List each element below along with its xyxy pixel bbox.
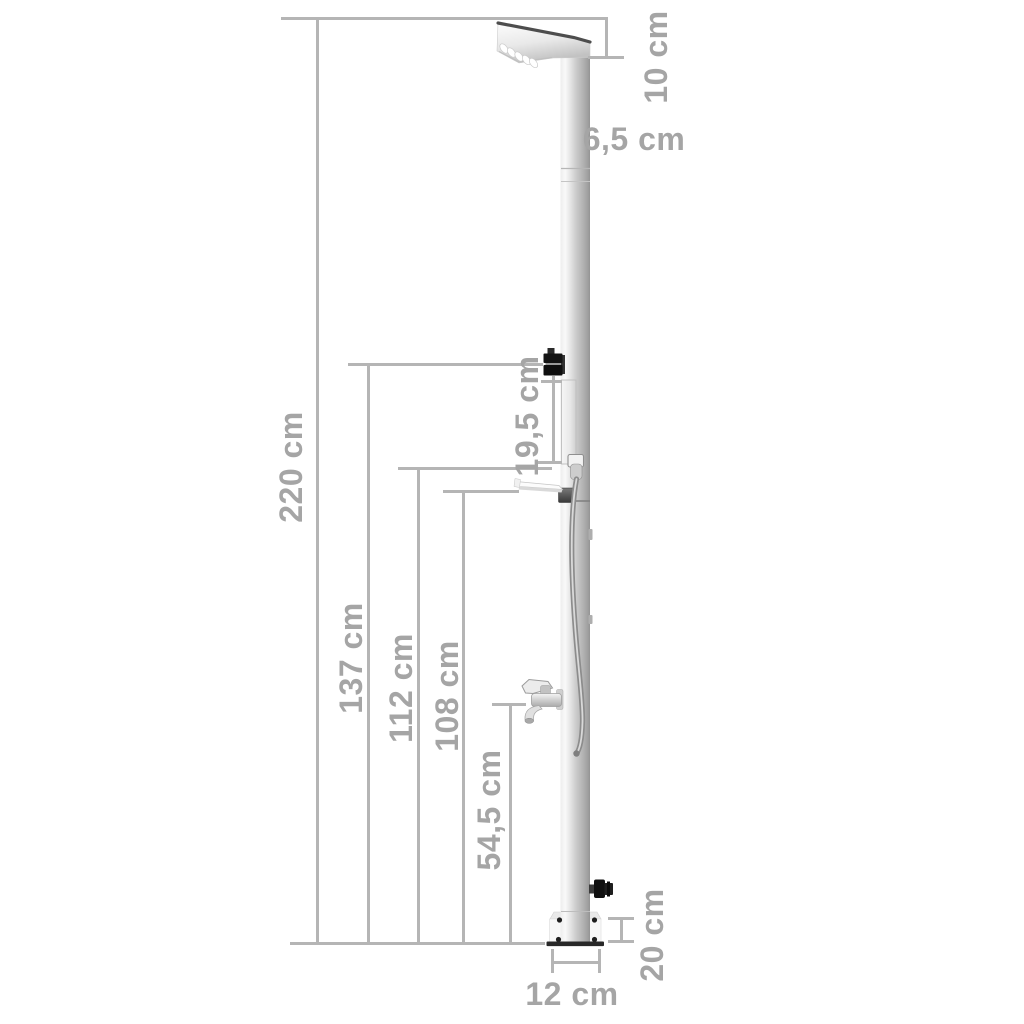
dim-ground-line bbox=[290, 942, 545, 945]
dim-label-total-height: 220 cm bbox=[275, 411, 307, 523]
dim-10-vline bbox=[605, 17, 608, 59]
dim-220-vline bbox=[316, 17, 319, 944]
pole-recessed-panel bbox=[562, 380, 577, 464]
dim-12-tick-left bbox=[551, 949, 554, 973]
pole-side-plug bbox=[589, 615, 593, 624]
dim-545-vline bbox=[509, 703, 512, 944]
dim-label-tap-height: 54,5 cm bbox=[473, 750, 505, 871]
dim-label-mixer-height: 137 cm bbox=[335, 602, 367, 714]
dim-label-shelf-height: 108 cm bbox=[431, 640, 463, 752]
dim-label-head-depth: 10 cm bbox=[640, 10, 672, 103]
pole-side-plug bbox=[589, 529, 593, 540]
dim-20-tick-bottom bbox=[608, 940, 634, 943]
dim-10-tick bbox=[588, 56, 624, 59]
dim-label-pole-width: 6,5 cm bbox=[583, 123, 686, 155]
dim-label-base-width: 12 cm bbox=[525, 978, 618, 1010]
dim-label-holder-height: 112 cm bbox=[385, 633, 417, 743]
dim-12-hline bbox=[551, 961, 601, 964]
dim-label-panel-length: 19,5 cm bbox=[511, 356, 543, 477]
dim-label-base-plate: 20 cm bbox=[636, 888, 668, 981]
water-inlet bbox=[589, 880, 613, 899]
base-plate-edge bbox=[547, 942, 605, 947]
shower-figure bbox=[0, 0, 1024, 1024]
hand-shower-holder bbox=[568, 455, 584, 480]
dimension-diagram: 10 cm 6,5 cm 220 cm 19,5 cm 137 cm 112 c… bbox=[0, 0, 1024, 1024]
dim-top-line bbox=[281, 17, 608, 20]
water-tap bbox=[522, 680, 563, 724]
dim-195-vline bbox=[552, 376, 555, 464]
dim-108-hline bbox=[443, 490, 519, 493]
dim-12-tick-right bbox=[598, 949, 601, 973]
